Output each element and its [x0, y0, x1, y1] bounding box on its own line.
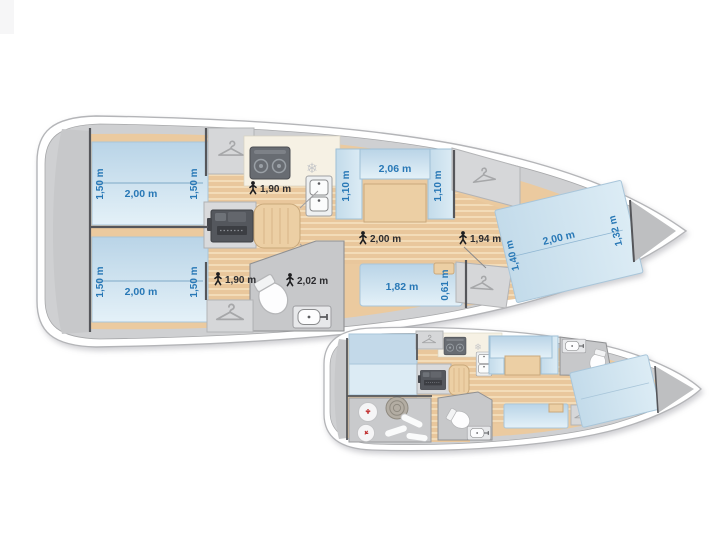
deck-plans-svg: ❄ 2,00 m 1,40 m	[0, 0, 712, 534]
aft-port-width-left-label: 1,50 m	[95, 168, 106, 199]
lower-transom-locker	[335, 339, 348, 439]
corridor-headroom-label: 1,90 m	[225, 275, 256, 286]
aft-stbd-width-left-label: 1,50 m	[95, 266, 106, 297]
head-sink-icon	[467, 426, 491, 440]
aft-port-length-label: 2,00 m	[125, 188, 158, 200]
stove-icon	[250, 147, 290, 179]
head-sink-icon	[562, 339, 586, 353]
lower-salon-bench-top	[490, 336, 552, 358]
lower-salon-table	[505, 356, 540, 375]
salon-headroom-label: 2,00 m	[370, 234, 401, 245]
bow-headroom-label: 1,94 m	[470, 234, 501, 245]
upper-boat-plan: ❄ 2,00 m 1,40 m	[37, 116, 686, 347]
fridge-icon: ❄	[306, 161, 318, 177]
aft-stbd-width-right-label: 1,50 m	[189, 266, 200, 297]
fridge-icon: ❄	[474, 343, 482, 353]
salon-bench-length-label: 2,06 m	[379, 163, 412, 175]
lower-wardrobe-top	[416, 331, 443, 349]
companionway-steps	[254, 204, 300, 248]
salon-table	[364, 184, 426, 222]
salon-depth-right-label: 1,10 m	[433, 170, 444, 201]
stove-icon	[444, 337, 466, 355]
galley-sink-icon	[306, 176, 332, 216]
lower-aft-bed-top	[349, 334, 417, 364]
lower-aft-bed-bottom	[349, 364, 417, 395]
upper-transom-locker	[53, 129, 90, 334]
galley-headroom-label: 1,90 m	[260, 184, 291, 195]
settee-length-label: 1,82 m	[386, 281, 419, 293]
head-headroom-label: 2,02 m	[297, 276, 328, 287]
salon-depth-left-label: 1,10 m	[341, 170, 352, 201]
yacht-layout-diagram: ❄ 2,00 m 1,40 m	[0, 0, 712, 534]
engine-icon	[207, 210, 253, 242]
engine-icon	[418, 370, 446, 389]
settee-pillow	[549, 404, 563, 412]
aft-port-width-right-label: 1,50 m	[189, 168, 200, 199]
aft-stbd-length-label: 2,00 m	[125, 286, 158, 298]
bow-locker-bottom	[456, 262, 512, 308]
corner-artifact	[0, 0, 14, 34]
lower-boat-plan: ❄	[324, 327, 701, 450]
head-sink-icon	[293, 306, 331, 328]
settee-depth-label: 0,61 m	[440, 269, 451, 300]
buoy-icon	[359, 403, 378, 422]
